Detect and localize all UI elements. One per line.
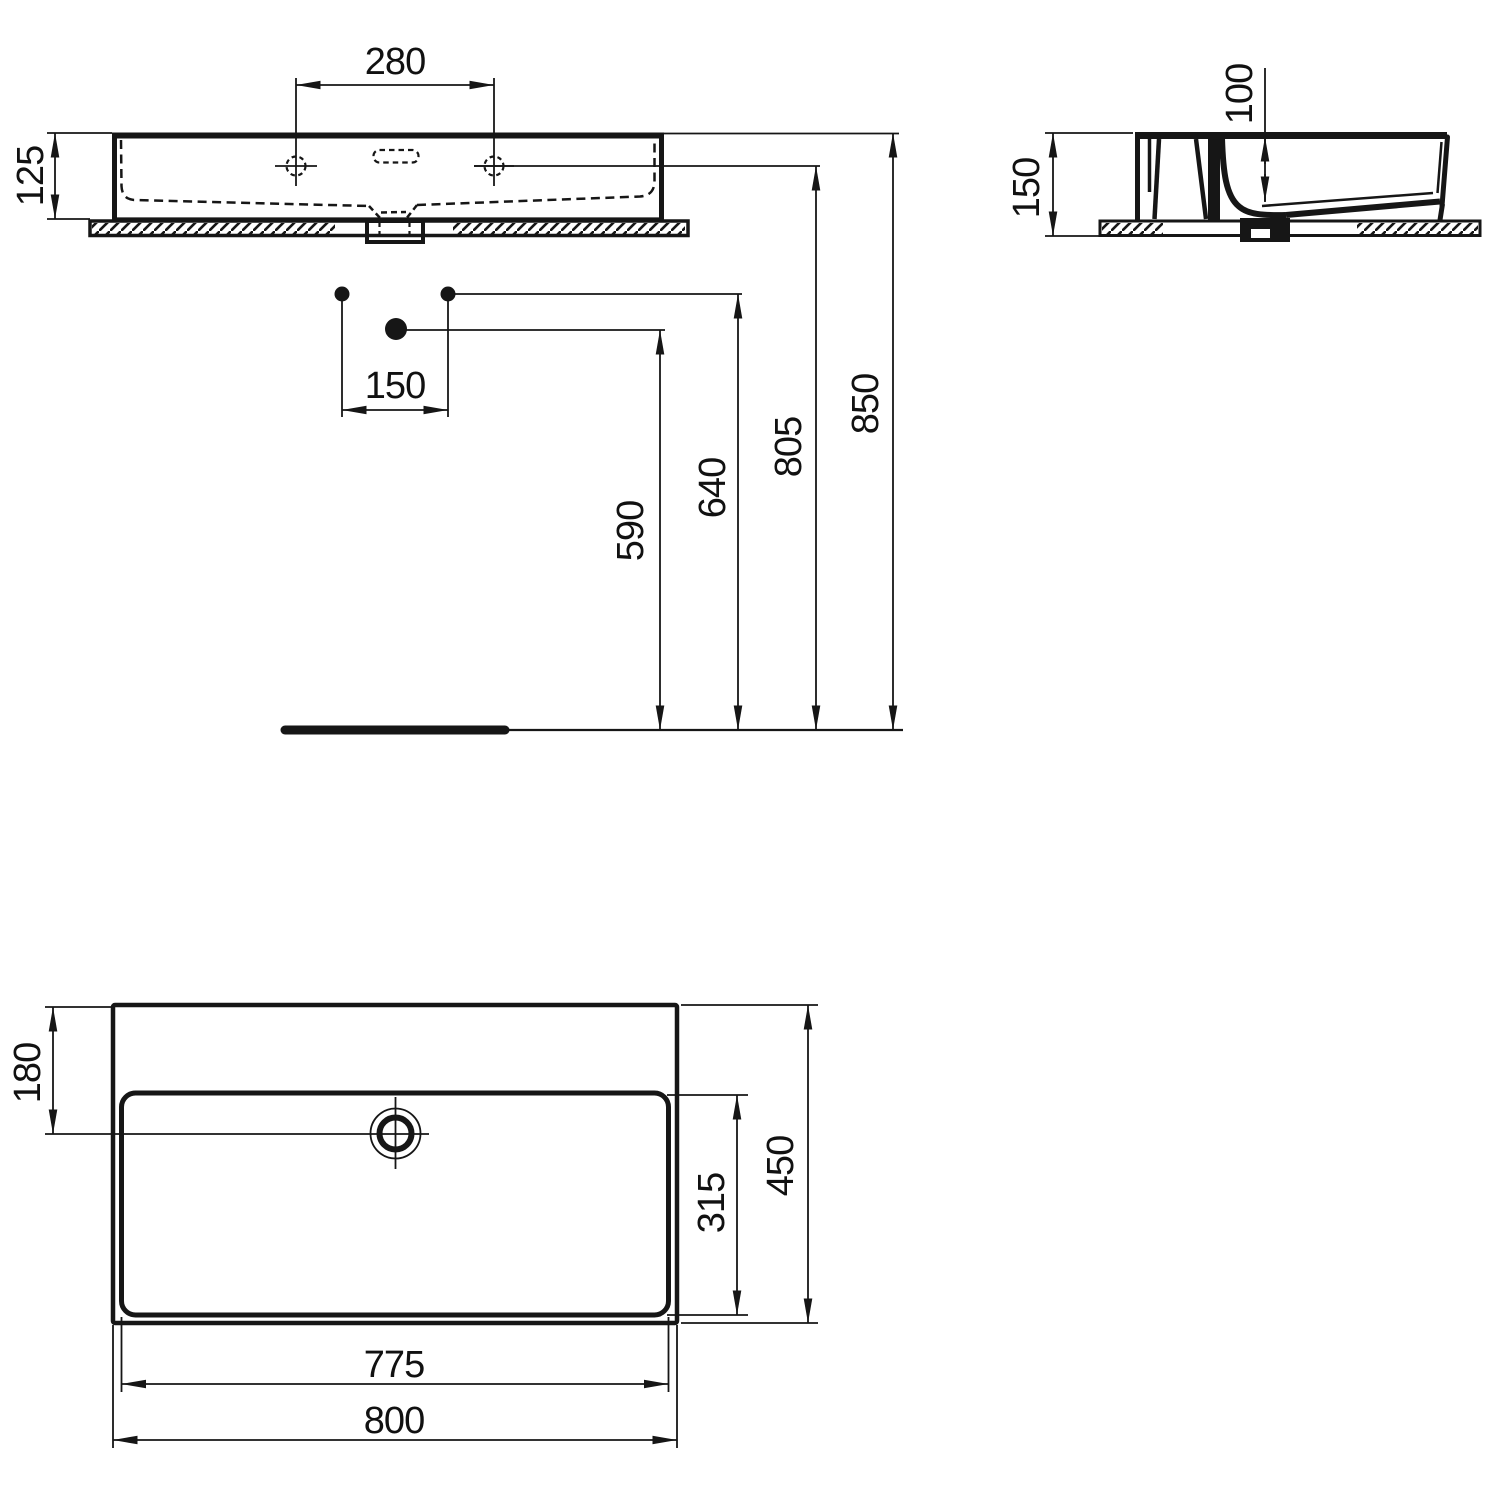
front-view: 280 125 150 590 640 805 850 xyxy=(10,41,903,730)
side-shelf-hatch-left xyxy=(1102,223,1163,234)
side-shelf-hatch-right xyxy=(1357,223,1478,234)
side-right-foot xyxy=(1440,204,1443,220)
dimension-basin-height: 125 xyxy=(10,133,112,219)
front-bowl-hidden-left xyxy=(121,140,369,206)
dim-label-640: 640 xyxy=(692,458,734,518)
dimension-tap-hole-spacing: 280 xyxy=(296,41,494,186)
dim-label-280: 280 xyxy=(365,41,425,83)
front-shelf-hatch-left xyxy=(92,223,335,234)
dimension-bowl-width: 775 xyxy=(122,1317,669,1392)
dim-label-805: 805 xyxy=(768,417,810,477)
dim-label-450: 450 xyxy=(760,1136,802,1196)
dimension-tap-height: 805 xyxy=(768,166,816,730)
front-bowl-hidden-right xyxy=(417,141,655,205)
dimension-rim-height: 850 xyxy=(845,133,893,730)
dim-label-590: 590 xyxy=(610,501,652,561)
dim-label-850: 850 xyxy=(845,374,887,434)
dim-label-100: 100 xyxy=(1219,64,1261,124)
side-drain-trap-slot xyxy=(1251,229,1270,238)
front-drain-funnel-hidden xyxy=(369,205,417,219)
dimension-supply-height: 590 xyxy=(610,330,660,730)
technical-drawing-canvas: 280 125 150 590 640 805 850 xyxy=(0,0,1500,1500)
front-overflow-slot xyxy=(374,150,419,163)
dim-label-800: 800 xyxy=(364,1400,424,1442)
dim-label-125: 125 xyxy=(10,146,52,206)
plan-view: 180 450 315 775 800 xyxy=(7,1005,818,1448)
dim-label-150-front: 150 xyxy=(365,365,425,407)
dim-label-775: 775 xyxy=(364,1344,424,1386)
front-shelf-hatch-right xyxy=(453,223,685,234)
dimension-drain-offset: 150 xyxy=(342,365,448,410)
dimension-hole-offset: 180 xyxy=(7,1007,113,1134)
dimension-drain-height: 640 xyxy=(692,294,738,730)
front-drain-block xyxy=(367,221,423,242)
front-drain-point xyxy=(385,318,407,340)
dimension-overall-depth: 450 xyxy=(681,1005,818,1323)
front-drain-pipe-hidden xyxy=(380,222,410,240)
dim-label-315: 315 xyxy=(691,1173,733,1233)
dim-label-150-side: 150 xyxy=(1006,158,1048,218)
technical-drawing-page: 280 125 150 590 640 805 850 xyxy=(0,0,1500,1500)
side-view: 150 100 xyxy=(1006,64,1480,242)
dim-label-180: 180 xyxy=(7,1043,49,1103)
